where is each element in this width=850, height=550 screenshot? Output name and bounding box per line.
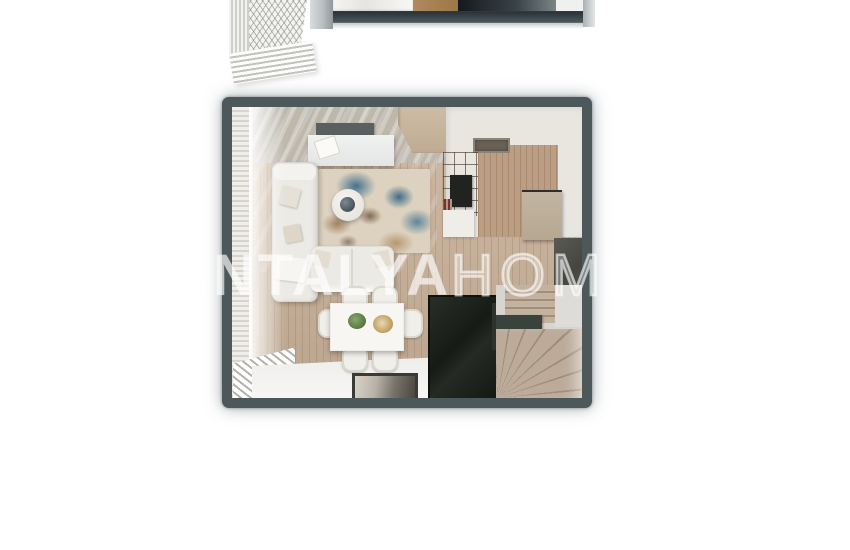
cooktop bbox=[473, 138, 510, 153]
table-plant bbox=[348, 313, 366, 329]
upper-plan-right-wall bbox=[583, 0, 595, 27]
table-plate bbox=[373, 315, 393, 333]
kitchen-cabinet bbox=[443, 210, 474, 237]
winder-stair-treads bbox=[496, 329, 582, 398]
balcony-railing-post bbox=[229, 0, 251, 57]
coffee-table-decor bbox=[340, 197, 355, 212]
watermark-light-text: HOMES bbox=[451, 243, 699, 308]
watermark: ANTALYAHOMES bbox=[168, 247, 699, 305]
upper-plan-frame-bar bbox=[333, 11, 583, 23]
kitchen-appliance-block bbox=[522, 190, 562, 240]
upper-plan-left-wall bbox=[310, 0, 333, 29]
upper-plan-fragment bbox=[333, 0, 583, 29]
black-wardrobe bbox=[428, 295, 498, 398]
upper-plan-frame-shadow bbox=[333, 23, 583, 29]
door-mat bbox=[352, 373, 418, 398]
screenshot-canvas: ANTALYAHOMES bbox=[0, 0, 850, 550]
dining-table bbox=[330, 303, 404, 351]
stair-railing-beam bbox=[496, 315, 542, 330]
shelf-tv-panel bbox=[450, 175, 472, 207]
watermark-bold-text: ANTALYA bbox=[168, 243, 451, 308]
upper-plan-dark-furniture bbox=[458, 0, 556, 11]
sofa-pillow bbox=[283, 224, 303, 244]
